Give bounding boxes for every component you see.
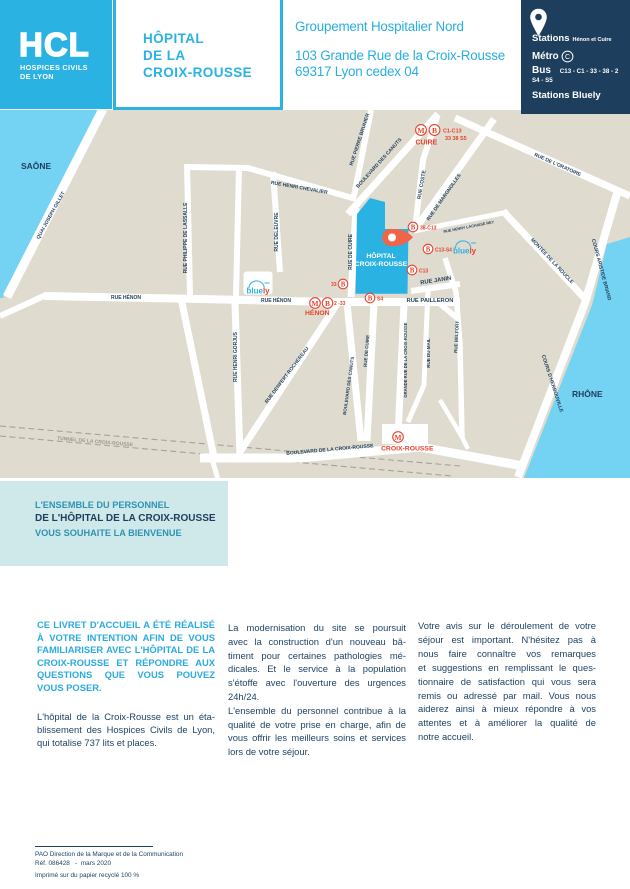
svg-text:B: B <box>410 268 415 275</box>
svg-text:S4: S4 <box>377 297 383 303</box>
svg-text:RUE HÉNON: RUE HÉNON <box>261 296 291 304</box>
svg-text:RUE DU MAIL: RUE DU MAIL <box>426 338 431 368</box>
svg-text:CROIX-ROUSSE: CROIX-ROUSSE <box>355 261 408 268</box>
svg-text:bluely: bluely <box>453 247 477 256</box>
svg-text:RUE PAILLERON: RUE PAILLERON <box>407 298 454 304</box>
svg-text:C13: C13 <box>419 269 428 275</box>
svg-text:M: M <box>312 299 319 308</box>
svg-text:M: M <box>417 126 424 135</box>
svg-text:HÉNON: HÉNON <box>305 308 330 317</box>
svg-text:RUE DELEUVRE: RUE DELEUVRE <box>274 212 280 252</box>
svg-text:C13-S4: C13-S4 <box>435 248 452 254</box>
svg-text:B: B <box>411 225 416 232</box>
svg-text:B: B <box>432 126 437 135</box>
svg-text:B: B <box>325 299 330 308</box>
svg-text:B: B <box>341 282 346 289</box>
svg-text:B: B <box>426 247 431 254</box>
svg-text:bluely: bluely <box>247 287 271 296</box>
svg-text:2 -33: 2 -33 <box>334 301 346 307</box>
svg-text:CUIRE: CUIRE <box>416 140 438 147</box>
svg-text:RUE DE CUIRE: RUE DE CUIRE <box>348 233 354 270</box>
svg-text:C1-C13: C1-C13 <box>443 129 462 135</box>
svg-text:RUE PHILIPPE DE LASSALLE: RUE PHILIPPE DE LASSALLE <box>183 202 189 274</box>
svg-text:RUE HENRI GORJUS: RUE HENRI GORJUS <box>233 331 239 382</box>
svg-text:B: B <box>368 296 373 303</box>
svg-text:RUE HÉNON: RUE HÉNON <box>111 293 141 301</box>
svg-text:M: M <box>395 433 402 442</box>
svg-text:33: 33 <box>331 282 337 288</box>
svg-text:GRANDE RUE DE LA CROIX-ROUSSE: GRANDE RUE DE LA CROIX-ROUSSE <box>403 322 408 397</box>
svg-text:CROIX-ROUSSE: CROIX-ROUSSE <box>381 446 434 453</box>
svg-text:HÔPITAL: HÔPITAL <box>366 251 395 260</box>
svg-text:33 38 S5: 33 38 S5 <box>445 136 467 142</box>
svg-text:38-C13: 38-C13 <box>420 226 437 232</box>
svg-text:SAÔNE: SAÔNE <box>21 160 52 171</box>
svg-text:RHÔNE: RHÔNE <box>572 388 603 399</box>
